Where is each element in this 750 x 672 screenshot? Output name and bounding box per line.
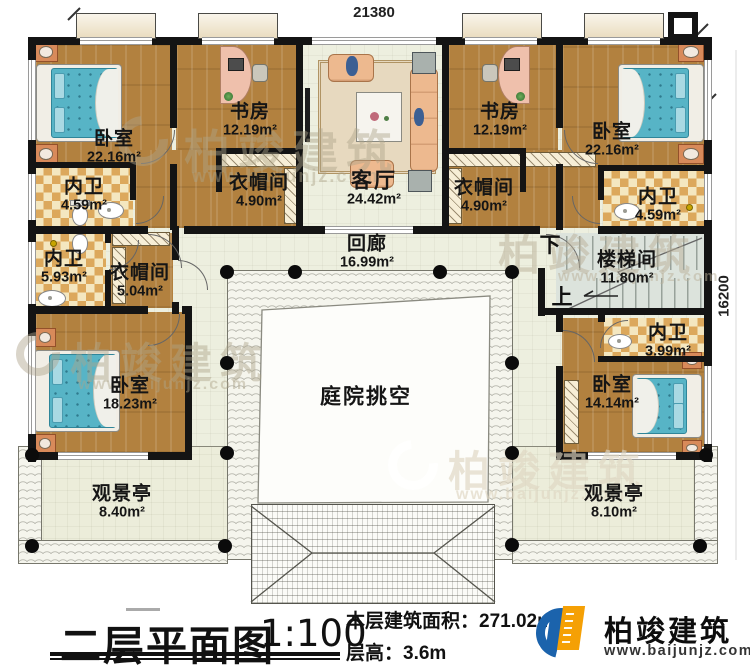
person-figure: [414, 108, 424, 126]
floor-height-line: 层高：3.6m: [346, 638, 446, 665]
column: [505, 446, 519, 460]
wall: [556, 366, 563, 460]
wall: [598, 165, 604, 200]
stair-down-label: 下: [540, 229, 561, 259]
dimension-top: 21380: [353, 4, 395, 21]
column: [505, 356, 519, 370]
room-label-bedroom-top-left: 卧室22.16m²: [87, 130, 141, 167]
coffee-table: [356, 92, 402, 142]
wall: [170, 164, 177, 230]
nightstand: [34, 42, 58, 62]
person-figure: [346, 56, 358, 76]
sink: [38, 290, 66, 307]
window: [588, 452, 676, 460]
wardrobe: [218, 152, 300, 167]
window: [28, 174, 36, 220]
bay-window: [462, 13, 542, 39]
window: [588, 37, 660, 45]
wall: [556, 164, 563, 230]
computer-monitor: [228, 58, 244, 71]
column: [288, 265, 302, 279]
logo-website: www.baijunjz.com: [604, 643, 750, 659]
room-label-stairwell: 楼梯间11.80m²: [597, 251, 657, 288]
column: [433, 265, 447, 279]
wardrobe: [446, 152, 524, 167]
wall: [598, 312, 605, 322]
plant: [516, 92, 525, 101]
column: [699, 448, 713, 462]
window: [58, 452, 148, 460]
tv: [305, 88, 310, 142]
stair-up-label: 上: [552, 281, 573, 311]
wall: [170, 37, 177, 128]
floor-area-line: 本层建筑面积：271.02m²: [346, 606, 560, 633]
room-label-living-room: 客厅24.42m²: [347, 169, 401, 208]
chimney: [668, 12, 698, 40]
title-underline-thin: [50, 658, 340, 660]
wall: [172, 302, 179, 314]
wall: [413, 226, 540, 234]
column: [25, 539, 39, 553]
room-label-bedroom-bottom-right: 卧室14.14m²: [585, 376, 639, 413]
desk: [498, 46, 530, 104]
floor-height-value: 3.6m: [403, 643, 446, 664]
window: [704, 60, 712, 140]
wall: [556, 312, 563, 332]
room-label-bedroom-bottom-left: 卧室18.23m²: [103, 377, 157, 414]
wall: [28, 306, 148, 314]
plant: [224, 92, 233, 101]
bay-window: [584, 13, 664, 39]
room-label-bath-mid-left: 内卫5.93m²: [41, 250, 87, 287]
window: [312, 37, 436, 45]
column: [220, 265, 234, 279]
plan-title: 二层平面图: [60, 612, 275, 672]
bay-window: [76, 13, 156, 39]
title-underline: [50, 652, 340, 656]
nightstand: [678, 42, 704, 62]
wall: [520, 148, 526, 192]
room-label-closet-top-left: 衣帽间4.90m²: [229, 174, 289, 211]
room-label-pavilion-left: 观景亭8.40m²: [92, 485, 152, 522]
column: [218, 539, 232, 553]
nightstand: [34, 144, 58, 164]
window: [28, 60, 36, 140]
window: [704, 366, 712, 444]
window: [202, 37, 274, 45]
floor-height-label: 层高：: [346, 643, 403, 664]
room-label-bath-bottom-right: 内卫3.99m²: [645, 324, 691, 361]
wall: [598, 226, 712, 234]
room-label-courtyard: 庭院挑空: [320, 385, 412, 408]
room-label-closet-top-right: 衣帽间4.90m²: [454, 179, 514, 216]
room-label-pavilion-right: 观景亭8.10m²: [584, 485, 644, 522]
nightstand: [34, 328, 56, 347]
column: [505, 265, 519, 279]
title-accent-line: [126, 608, 160, 611]
wall: [442, 148, 526, 154]
floor-plan: 21380 16200: [0, 0, 750, 672]
roof-ridge-lines: [251, 506, 495, 602]
room-label-bath-top-right: 内卫4.59m²: [635, 188, 681, 225]
column: [220, 446, 234, 460]
wall: [184, 226, 325, 234]
nightstand: [678, 144, 704, 164]
room-label-bedroom-top-right: 卧室22.16m²: [585, 123, 639, 160]
dimension-right: 16200: [716, 275, 733, 317]
window: [80, 37, 152, 45]
lamp-dot: [686, 204, 693, 211]
wall: [216, 148, 303, 154]
wall: [216, 148, 222, 192]
side-table: [408, 170, 432, 192]
wall: [130, 162, 136, 200]
wardrobe: [564, 380, 579, 444]
column: [25, 448, 39, 462]
room-label-study-right: 书房12.19m²: [473, 103, 527, 140]
wall: [556, 37, 563, 128]
wall: [185, 306, 192, 460]
bed: [632, 374, 702, 438]
floor-area-label: 本层建筑面积：: [346, 611, 479, 632]
chair: [252, 64, 268, 82]
side-table: [412, 52, 436, 74]
room-label-corridor: 回廊16.99m²: [340, 235, 394, 272]
window: [704, 174, 712, 220]
wall: [296, 37, 303, 233]
window: [28, 242, 36, 304]
room-label-bath-top-left: 内卫4.59m²: [61, 178, 107, 215]
room-label-closet-mid-left: 衣帽间5.04m²: [110, 264, 170, 301]
wall: [598, 165, 712, 171]
column: [505, 538, 519, 552]
lamp-dot: [50, 240, 57, 247]
computer-monitor: [504, 58, 520, 71]
room-label-study-left: 书房12.19m²: [223, 103, 277, 140]
bay-window: [198, 13, 278, 39]
chair: [482, 64, 498, 82]
column: [693, 539, 707, 553]
wall: [442, 37, 449, 233]
window: [28, 336, 36, 434]
wall: [28, 226, 148, 234]
column: [220, 356, 234, 370]
window: [465, 37, 537, 45]
